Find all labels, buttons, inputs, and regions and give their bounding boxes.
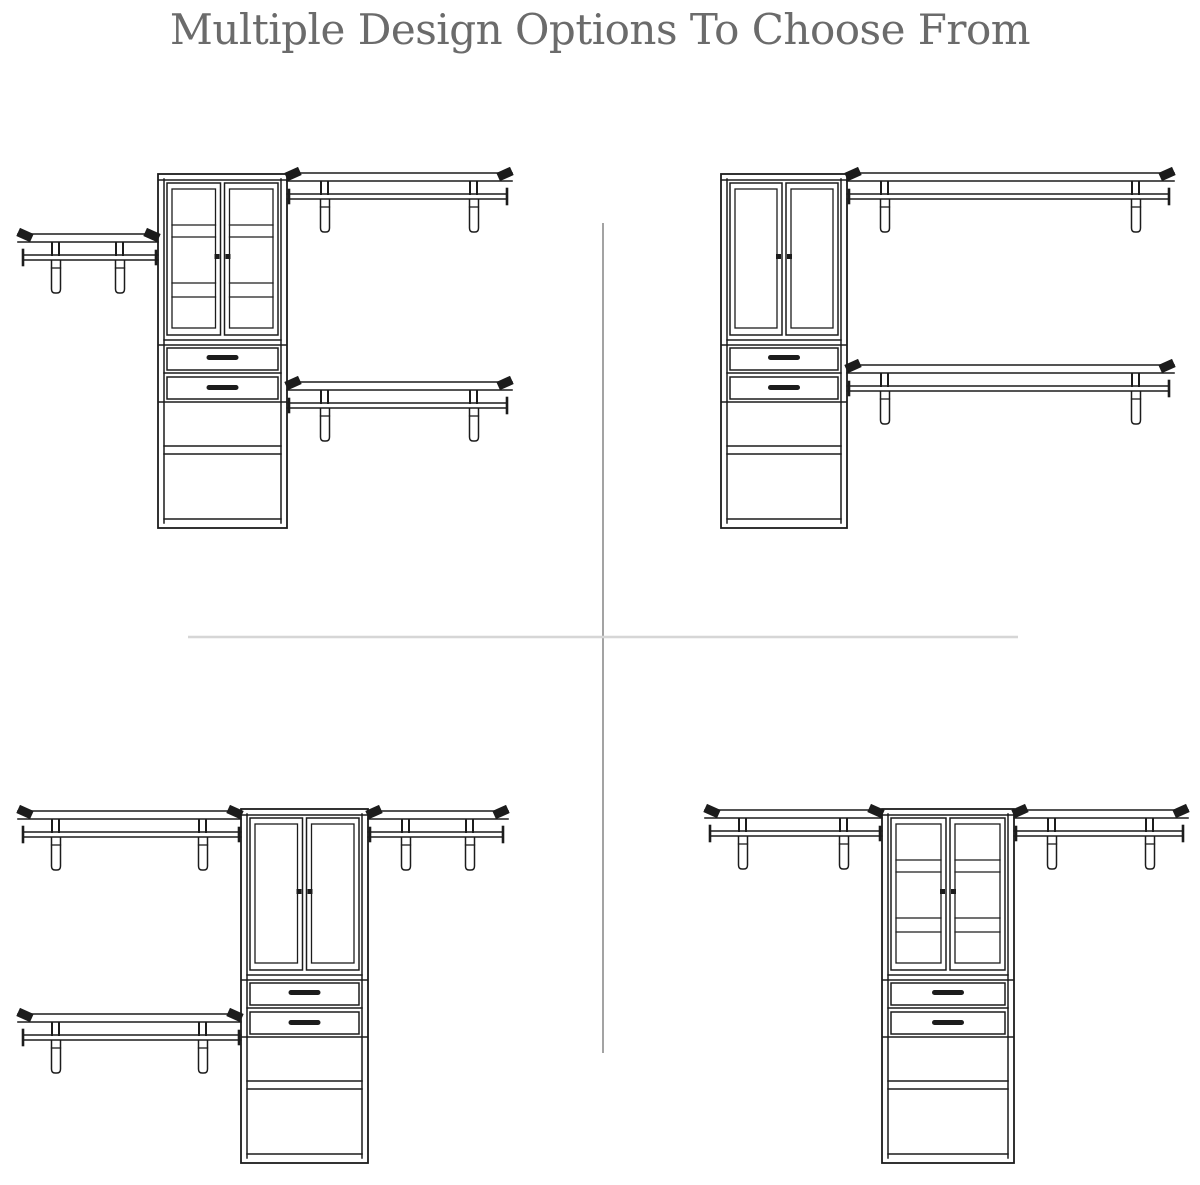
design-option-bottom-left-shelf-rod-unit-3 [16,1008,243,1073]
drawer-handle [289,990,321,995]
design-option-top-left-tower-cabinet [158,174,287,528]
drawer-handle [207,355,239,360]
designs-canvas [0,0,1200,1185]
rod-support-post [1132,391,1141,424]
drawer-handle [932,990,964,995]
drawer-handle [768,385,800,390]
design-option-bottom-right-shelf-rod-unit-2 [1011,804,1189,869]
rod-support-post [321,199,330,232]
drawer-handle [289,1020,321,1025]
design-option-bottom-left [16,805,509,1163]
rod-support-post [321,408,330,441]
rod-support-post [470,408,479,441]
cabinet-door [730,183,782,335]
rod-support-post [739,836,748,869]
cabinet-door [225,183,279,335]
rod-support-post [1048,836,1057,869]
drawer-handle [207,385,239,390]
rod-support-post [52,1040,61,1073]
bracket-end-cap [703,804,720,818]
design-option-top-left [16,167,513,528]
cabinet-door [167,183,221,335]
design-option-top-right-tower-cabinet [721,174,847,528]
door-knob [776,254,781,259]
door-knob [215,254,220,259]
design-option-top-right-shelf-rod-unit-2 [844,359,1175,424]
bracket-end-cap [1158,359,1175,373]
rod-support-post [881,391,890,424]
design-option-bottom-left-shelf-rod-unit-2 [365,805,509,870]
door-knob [787,254,792,259]
bracket-end-cap [16,228,33,242]
tower-frame [241,809,368,1163]
design-option-top-left-shelf-rod-unit-1 [284,167,513,232]
rod-support-post [466,837,475,870]
rod-support-post [402,837,411,870]
design-option-top-left-shelf-rod-unit-2 [284,376,513,441]
door-knob [308,889,313,894]
drawer-handle [932,1020,964,1025]
rod-support-post [840,836,849,869]
design-option-bottom-left-tower-cabinet [241,809,368,1163]
tower-frame [158,174,287,528]
tower-frame [721,174,847,528]
bracket-end-cap [16,1008,33,1022]
rod-support-post [52,260,61,293]
rod-support-post [199,837,208,870]
door-knob [297,889,302,894]
design-option-top-right-shelf-rod-unit-1 [844,167,1175,232]
drawer-handle [768,355,800,360]
design-option-bottom-right-tower-cabinet [882,809,1014,1163]
rod-support-post [116,260,125,293]
door-knob [951,889,956,894]
bracket-end-cap [496,167,513,181]
cabinet-door [250,818,303,970]
design-option-bottom-right [703,804,1189,1163]
bracket-end-cap [16,805,33,819]
door-knob [226,254,231,259]
door-knob [940,889,945,894]
cabinet-door [307,818,360,970]
design-option-bottom-left-shelf-rod-unit-1 [16,805,243,870]
bracket-end-cap [492,805,509,819]
design-option-top-right [721,167,1176,528]
design-options-infographic: Multiple Design Options To Choose From [0,0,1200,1185]
tower-frame [882,809,1014,1163]
rod-support-post [1146,836,1155,869]
cabinet-door [786,183,838,335]
rod-support-post [199,1040,208,1073]
rod-support-post [881,199,890,232]
design-option-bottom-right-shelf-rod-unit-1 [703,804,884,869]
design-option-top-left-shelf-rod-unit-3 [16,228,160,293]
cabinet-door [891,818,946,970]
rod-support-post [470,199,479,232]
rod-support-post [1132,199,1141,232]
bracket-end-cap [1172,804,1189,818]
rod-support-post [52,837,61,870]
cabinet-door [950,818,1005,970]
bracket-end-cap [1158,167,1175,181]
bracket-end-cap [496,376,513,390]
